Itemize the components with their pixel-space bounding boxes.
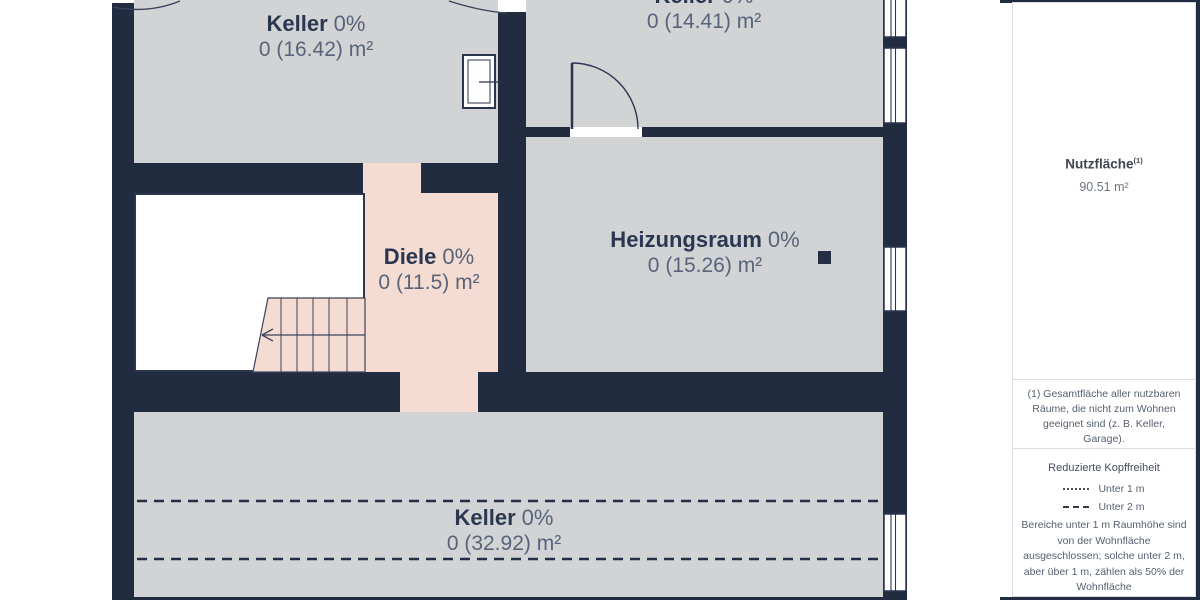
- room-name: Diele: [384, 244, 437, 269]
- frame-right: [1196, 0, 1200, 600]
- wall-right-outer: [883, 0, 907, 600]
- room-area: 0 (14.41) m²: [647, 9, 761, 35]
- wall-mid-bottom-b: [478, 372, 907, 412]
- room-label-heizungsraum: Heizungsraum0% 0 (15.26) m²: [610, 226, 799, 279]
- stairwell-void: [134, 193, 365, 372]
- room-percent: 0%: [442, 244, 474, 269]
- room-percent: 0%: [722, 0, 754, 8]
- room-area: 0 (32.92) m²: [447, 531, 561, 557]
- nutzflaeche-title: Nutzfläche(1): [1013, 156, 1195, 172]
- wall-ne-bottom-b: [642, 127, 883, 137]
- sidebar-divider: [1013, 448, 1195, 449]
- sidebar-divider: [1013, 379, 1195, 380]
- legend-label: Unter 1 m: [1098, 483, 1144, 495]
- dashed-line-icon: [1063, 506, 1089, 508]
- room-percent: 0%: [522, 505, 554, 530]
- legend-label: Unter 2 m: [1098, 501, 1144, 513]
- wall-ne-bottom-a: [526, 127, 570, 137]
- room-name: Heizungsraum: [610, 227, 762, 252]
- legend-item-under-2m: Unter 2 m: [1013, 501, 1195, 513]
- footnote-text: (1) Gesamtfläche aller nutzbaren Räume, …: [1024, 387, 1184, 447]
- sidebar: Nutzfläche(1) 90.51 m² (1) Gesamtfläche …: [1012, 2, 1196, 597]
- footnote-marker: (1): [1134, 156, 1143, 165]
- room-percent: 0%: [768, 227, 800, 252]
- room-label-keller-ne: Keller0% 0 (14.41) m²: [647, 0, 761, 35]
- wall-nw-bottom-b: [421, 163, 526, 193]
- legend-description: Bereiche unter 1 m Raumhöhe sind von der…: [1020, 518, 1188, 596]
- room-label-keller-nw: Keller0% 0 (16.42) m²: [259, 10, 373, 63]
- room-area: 0 (16.42) m²: [259, 37, 373, 63]
- room-label-diele: Diele0% 0 (11.5) m²: [378, 243, 479, 296]
- room-name: Keller: [655, 0, 716, 8]
- wall-mid-bottom-a: [112, 372, 400, 412]
- room-percent: 0%: [334, 11, 366, 36]
- legend-title: Reduzierte Kopffreiheit: [1013, 462, 1195, 474]
- room-name: Keller: [455, 505, 516, 530]
- dotted-line-icon: [1063, 488, 1089, 490]
- nutzflaeche-value: 90.51 m²: [1013, 180, 1195, 194]
- room-area: 0 (15.26) m²: [610, 253, 799, 279]
- legend-item-under-1m: Unter 1 m: [1013, 483, 1195, 495]
- wall-nw-bottom-a: [112, 163, 363, 193]
- room-label-keller-s: Keller0% 0 (32.92) m²: [447, 504, 561, 557]
- wall-left-outer: [112, 3, 134, 600]
- floorplan-viewer: Keller0% 0 (16.42) m² Keller0% 0 (14.41)…: [0, 0, 1200, 600]
- room-area: 0 (11.5) m²: [378, 270, 479, 296]
- room-name: Keller: [267, 11, 328, 36]
